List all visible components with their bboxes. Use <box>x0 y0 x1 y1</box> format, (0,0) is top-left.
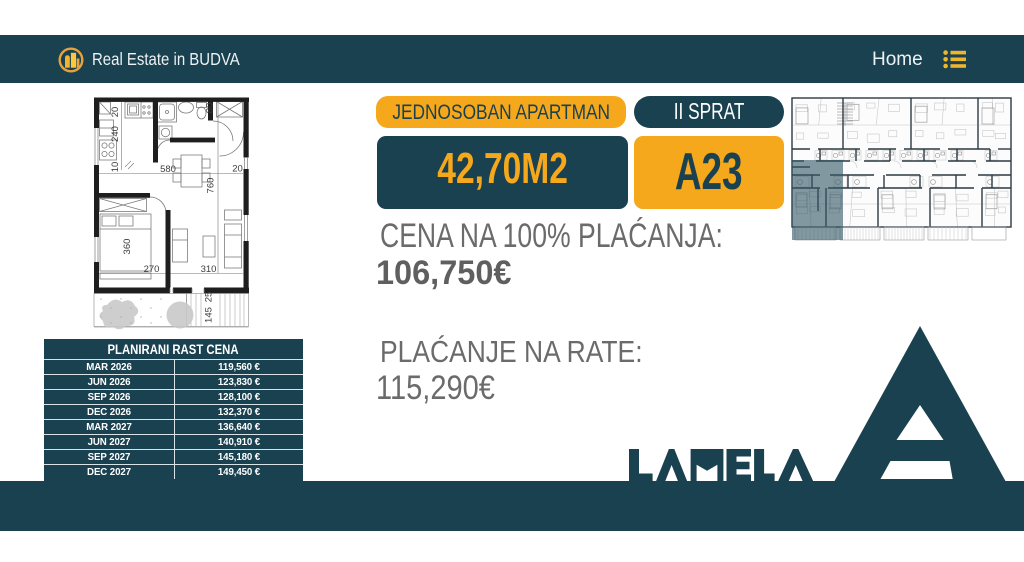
svg-text:80: 80 <box>205 103 216 114</box>
svg-text:20: 20 <box>232 164 243 175</box>
svg-text:310: 310 <box>201 264 217 275</box>
svg-text:360: 360 <box>122 239 133 255</box>
svg-text:20: 20 <box>110 107 121 118</box>
svg-text:270: 270 <box>144 264 160 275</box>
svg-text:145: 145 <box>204 307 215 323</box>
svg-text:580: 580 <box>160 164 176 175</box>
svg-text:10: 10 <box>110 162 121 173</box>
svg-text:760: 760 <box>206 178 217 194</box>
svg-text:240: 240 <box>110 126 121 142</box>
svg-text:25: 25 <box>204 292 215 303</box>
